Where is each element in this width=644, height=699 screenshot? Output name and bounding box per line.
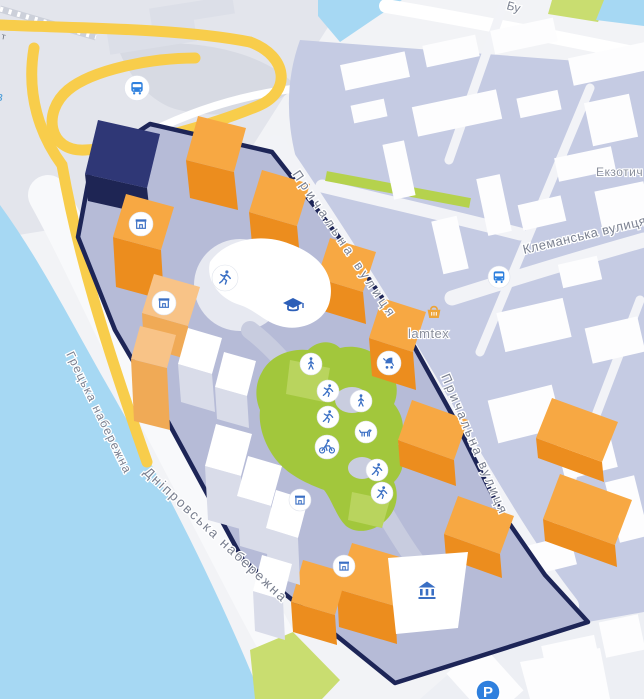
bus-icon[interactable] — [488, 266, 510, 288]
poi-label-ekzotych: Екзотич — [596, 165, 643, 179]
map-canvas[interactable]: P Причальна вулиця Причальна вулиця Клем… — [0, 0, 644, 699]
runner-icon[interactable] — [366, 459, 388, 481]
kiosk-icon[interactable] — [333, 555, 355, 577]
bus-icon[interactable] — [125, 76, 150, 101]
kiosk-icon[interactable] — [129, 212, 153, 236]
dog-walking-icon[interactable] — [355, 421, 377, 443]
parking-letter: P — [483, 684, 493, 699]
water-label-partial: в — [0, 89, 3, 104]
runner-icon[interactable] — [212, 265, 238, 291]
runner-icon[interactable] — [317, 406, 339, 428]
cyclist-icon[interactable] — [315, 435, 339, 459]
walker-icon[interactable] — [300, 353, 322, 375]
walker-icon[interactable] — [350, 390, 372, 412]
stroller-icon[interactable] — [377, 351, 401, 375]
kiosk-icon[interactable] — [289, 489, 311, 511]
runner-icon[interactable] — [317, 380, 339, 402]
kiosk-icon[interactable] — [152, 291, 176, 315]
poi-label-lamtex: lamtex — [408, 326, 449, 341]
runner-icon[interactable] — [371, 482, 393, 504]
parking-icon[interactable]: P — [476, 680, 500, 699]
